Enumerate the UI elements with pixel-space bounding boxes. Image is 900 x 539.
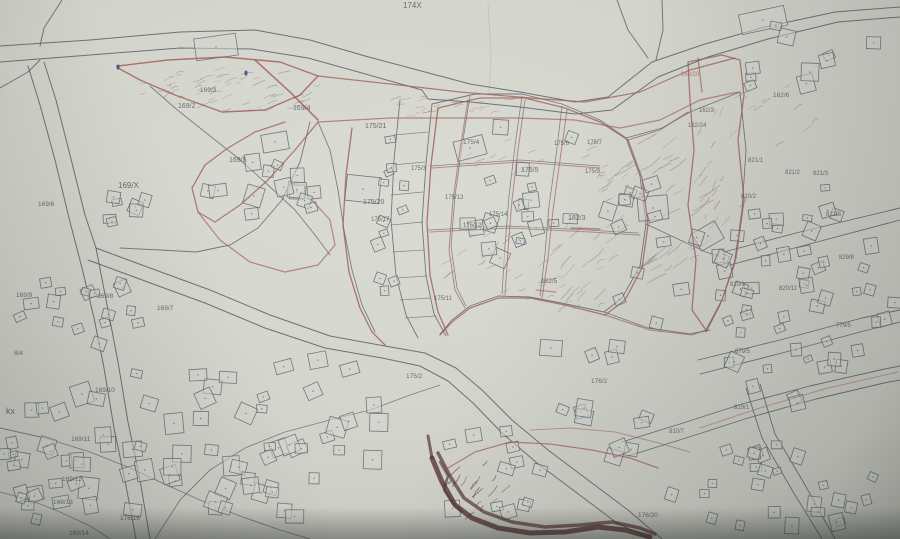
hatch-scribble bbox=[267, 85, 277, 88]
boundary-line bbox=[628, 380, 900, 456]
hatch-scribble bbox=[476, 159, 484, 162]
parcel-label: 175/13 bbox=[445, 195, 464, 201]
hatch-scribble bbox=[177, 74, 181, 75]
hatch-scribble bbox=[595, 289, 606, 300]
hatch-scribble bbox=[722, 218, 726, 226]
hatch-scribble bbox=[594, 233, 601, 240]
hatch-scribble bbox=[804, 125, 812, 131]
boundary-line bbox=[617, 0, 648, 58]
building-footprint bbox=[585, 347, 600, 363]
building-footprint bbox=[751, 478, 764, 491]
red-annotation-line bbox=[449, 100, 468, 308]
hatch-scribble bbox=[720, 177, 723, 181]
building-footprint bbox=[13, 311, 27, 323]
parcel-label: 174X bbox=[403, 1, 422, 10]
hatch-scribble bbox=[663, 137, 676, 149]
building-footprint bbox=[40, 277, 52, 288]
parcel-label: 810/7 bbox=[669, 429, 685, 435]
hatch-scribble bbox=[582, 260, 591, 267]
building-footprint bbox=[385, 135, 396, 143]
blue-pen-mark bbox=[244, 70, 247, 75]
building-footprint bbox=[50, 402, 70, 421]
hatch-scribble bbox=[473, 488, 479, 498]
hatch-scribble bbox=[455, 104, 463, 106]
hatch-scribble bbox=[240, 76, 246, 79]
parcel-label: 169/2 bbox=[178, 103, 196, 110]
building-footprint bbox=[522, 211, 534, 221]
building-footprint bbox=[106, 217, 117, 228]
red-annotation-line bbox=[571, 228, 600, 229]
boundary-line bbox=[622, 366, 900, 442]
building-footprint bbox=[189, 369, 207, 381]
hatch-scribble bbox=[714, 201, 720, 209]
hatch-scribble bbox=[561, 256, 571, 268]
boundary-line bbox=[488, 4, 491, 95]
red-annotation-line bbox=[605, 140, 648, 315]
hatch-scribble bbox=[597, 259, 604, 263]
building-footprint bbox=[790, 343, 801, 356]
building-footprint bbox=[208, 183, 227, 197]
hatch-scribble bbox=[609, 255, 619, 261]
building-footprint bbox=[866, 37, 880, 49]
building-footprint bbox=[649, 316, 663, 330]
building-footprint bbox=[500, 426, 513, 437]
building-footprint bbox=[872, 317, 881, 328]
parcel-label: kx bbox=[6, 406, 16, 416]
building-footprint bbox=[193, 411, 208, 425]
building-footprint bbox=[399, 181, 409, 191]
building-footprint bbox=[634, 416, 650, 429]
building-footprint bbox=[757, 464, 773, 479]
hatch-scribble bbox=[457, 250, 466, 256]
parcel-label: 821/3 bbox=[813, 171, 829, 177]
hatch-scribble bbox=[176, 71, 184, 73]
hatch-scribble bbox=[225, 78, 236, 83]
hatch-scribble bbox=[587, 147, 597, 151]
hatch-scribble bbox=[419, 98, 427, 101]
hatch-scribble bbox=[726, 216, 730, 221]
building-footprint bbox=[763, 364, 772, 373]
building-footprint bbox=[516, 237, 525, 244]
parcel-label: 175/11 bbox=[434, 296, 453, 302]
parcel-label: 169/7 bbox=[157, 305, 174, 312]
building-footprint bbox=[770, 21, 782, 30]
hatch-scribble bbox=[776, 142, 784, 146]
building-footprint bbox=[274, 177, 294, 197]
parcel-label: 175/4 bbox=[463, 139, 480, 146]
parcel-label: 162/6 bbox=[773, 92, 790, 99]
cadastral-map: 174X169/2169/3169/4169/X169/5169/6169/81… bbox=[0, 0, 900, 539]
hatch-scribble bbox=[227, 83, 232, 85]
building-footprint bbox=[821, 336, 833, 348]
parcel-label: 829/8 bbox=[839, 255, 855, 261]
building-footprint bbox=[797, 245, 812, 257]
parcel-label: 162/3 bbox=[699, 108, 715, 114]
building-footprint bbox=[36, 402, 49, 414]
building-footprint bbox=[656, 236, 671, 247]
hatch-scribble bbox=[674, 188, 684, 195]
hatch-scribble bbox=[502, 486, 510, 493]
building-footprint bbox=[722, 315, 733, 326]
hatch-scribble bbox=[484, 233, 490, 237]
hatch-scribble bbox=[567, 301, 572, 303]
boundary-line bbox=[656, 0, 663, 60]
hatch-scribble bbox=[519, 289, 524, 291]
parcel-label: 8/4 bbox=[14, 350, 23, 357]
building-footprint bbox=[556, 403, 570, 416]
hatch-scribble bbox=[198, 80, 205, 83]
building-footprint bbox=[852, 287, 861, 296]
building-footprint bbox=[735, 520, 745, 531]
hatch-scribble bbox=[665, 265, 672, 271]
building-footprint bbox=[244, 153, 261, 171]
boundary-line bbox=[432, 94, 626, 138]
boundary-line bbox=[96, 248, 662, 539]
parcel-label: 175/20 bbox=[363, 199, 385, 206]
hatch-scribble bbox=[597, 266, 603, 270]
hatch-scribble bbox=[473, 106, 483, 109]
building-footprint bbox=[256, 404, 267, 413]
parcel-label: 175/12 bbox=[463, 223, 482, 229]
boundary-line bbox=[391, 222, 423, 225]
building-footprint bbox=[380, 286, 389, 296]
building-footprint bbox=[861, 494, 872, 506]
map-photo: 174X169/2169/3169/4169/X169/5169/6169/81… bbox=[0, 0, 900, 539]
parcel-label: 160/20 bbox=[681, 72, 700, 78]
building-footprint bbox=[575, 398, 593, 418]
building-footprint bbox=[55, 287, 66, 296]
building-footprint bbox=[295, 444, 308, 454]
parcel-label: 169/3 bbox=[200, 87, 217, 94]
hatch-scribble bbox=[638, 134, 657, 144]
building-footprint bbox=[49, 478, 63, 488]
hatch-scribble bbox=[208, 100, 216, 102]
parcel-label: 819/1 bbox=[734, 405, 750, 411]
boundary-line bbox=[405, 316, 436, 318]
hatch-scribble bbox=[490, 111, 499, 114]
boundary-line bbox=[40, 0, 62, 46]
building-footprint bbox=[802, 221, 821, 241]
building-footprint bbox=[748, 209, 761, 219]
parcel-label: 169/4 bbox=[293, 105, 311, 112]
building-footprint bbox=[642, 176, 661, 193]
parcel-label: 176/16 bbox=[120, 515, 140, 522]
building-footprint bbox=[761, 255, 770, 266]
building-footprint bbox=[234, 402, 257, 425]
hatch-scribble bbox=[476, 501, 481, 505]
hatch-scribble bbox=[561, 286, 572, 299]
building-footprint bbox=[379, 229, 389, 238]
boundary-line bbox=[396, 276, 427, 278]
parcel-label: 175/3 bbox=[411, 166, 427, 172]
building-footprint bbox=[82, 496, 98, 514]
building-footprint bbox=[664, 487, 679, 503]
building-footprint bbox=[549, 219, 559, 226]
building-footprint bbox=[303, 382, 323, 401]
parcel-label: 175/14 bbox=[489, 212, 508, 218]
hatch-scribble bbox=[598, 303, 604, 307]
building-footprint bbox=[803, 355, 813, 363]
parcel-label: 679/5 bbox=[735, 349, 751, 355]
hatch-scribble bbox=[528, 150, 536, 153]
building-footprint bbox=[274, 358, 294, 374]
hatch-scribble bbox=[278, 71, 290, 74]
building-footprint bbox=[264, 442, 276, 450]
boundary-line bbox=[393, 250, 424, 252]
building-footprint bbox=[831, 493, 846, 509]
hatch-scribble bbox=[500, 156, 507, 160]
hatch-scribble bbox=[490, 154, 496, 158]
building-footprint bbox=[785, 517, 800, 534]
parcel-label: 169/13 bbox=[53, 499, 73, 506]
building-footprint bbox=[532, 463, 548, 477]
building-footprint bbox=[130, 369, 142, 379]
hatch-scribble bbox=[623, 173, 628, 177]
hatch-scribble bbox=[560, 284, 566, 287]
building-footprint bbox=[522, 192, 540, 209]
building-footprint bbox=[6, 436, 19, 450]
hatch-scribble bbox=[433, 104, 440, 106]
heavy-red-stroke bbox=[438, 453, 655, 534]
hatch-scribble bbox=[169, 76, 174, 77]
building-footprint bbox=[363, 450, 382, 469]
building-footprint bbox=[370, 237, 385, 253]
building-footprint bbox=[730, 230, 744, 242]
hatch-scribble bbox=[712, 142, 716, 148]
building-footprint bbox=[790, 448, 806, 465]
hatch-scribble bbox=[421, 96, 427, 97]
parcel-label: 169/9 bbox=[16, 292, 33, 299]
hatch-scribble bbox=[699, 185, 719, 198]
parcel-label: 821/2 bbox=[785, 170, 801, 176]
building-footprint bbox=[598, 201, 617, 221]
building-footprint bbox=[309, 473, 319, 484]
hatch-scribble bbox=[303, 92, 312, 97]
hatch-scribble bbox=[651, 265, 662, 271]
building-footprint bbox=[261, 131, 290, 153]
hatch-scribble bbox=[243, 102, 249, 104]
hatch-scribble bbox=[551, 243, 564, 255]
hatch-scribble bbox=[172, 89, 178, 92]
red-annotation-line bbox=[628, 112, 688, 140]
parcel-label: 182/5 bbox=[541, 278, 558, 285]
boundary-line bbox=[540, 106, 562, 296]
building-footprint bbox=[265, 487, 278, 498]
building-footprint bbox=[73, 457, 91, 472]
building-footprint bbox=[219, 371, 237, 383]
hatch-scribble bbox=[479, 260, 485, 264]
building-footprint bbox=[746, 378, 761, 394]
hatch-scribble bbox=[670, 159, 686, 171]
hatch-scribble bbox=[785, 85, 788, 87]
parcel-label: 820/11 bbox=[779, 286, 798, 292]
hatch-scribble bbox=[209, 98, 214, 100]
hatch-scribble bbox=[761, 99, 765, 101]
hatch-scribble bbox=[670, 157, 679, 161]
building-footprint bbox=[539, 339, 562, 356]
hatch-scribble bbox=[607, 198, 613, 200]
hatch-scribble bbox=[666, 185, 674, 192]
building-footprint bbox=[443, 439, 457, 450]
blue-pen-mark bbox=[116, 64, 119, 69]
hatch-scribble bbox=[557, 276, 562, 277]
parcel-label: 169/14 bbox=[69, 530, 89, 537]
parcel-label: 820/2 bbox=[741, 194, 757, 200]
parcel-label: 169/12 bbox=[62, 476, 82, 483]
building-footprint bbox=[673, 282, 690, 296]
building-footprint bbox=[290, 168, 304, 183]
hatch-scribble bbox=[694, 175, 702, 183]
hatch-scribble bbox=[140, 92, 145, 94]
hatch-scribble bbox=[548, 295, 553, 297]
building-footprint bbox=[619, 194, 631, 205]
hatch-scribble bbox=[507, 270, 511, 273]
building-footprint bbox=[754, 236, 768, 251]
building-footprint bbox=[778, 310, 790, 323]
hatch-scribble bbox=[215, 68, 225, 71]
building-footprint bbox=[844, 501, 857, 514]
hatch-scribble bbox=[223, 108, 230, 110]
hatch-scribble bbox=[169, 83, 176, 86]
hatch-scribble bbox=[714, 109, 716, 114]
building-footprint bbox=[140, 395, 159, 412]
building-footprint bbox=[733, 456, 744, 466]
hatch-scribble bbox=[416, 112, 420, 113]
building-footprint bbox=[126, 306, 135, 316]
hatch-scribble bbox=[690, 204, 705, 217]
hatch-scribble bbox=[705, 197, 709, 203]
parcel-label: 820/1 bbox=[730, 282, 746, 288]
parcel-label: 175/6 bbox=[554, 141, 570, 147]
hatch-scribble bbox=[253, 80, 265, 85]
parcel-label: 176/20 bbox=[638, 512, 658, 519]
building-footprint bbox=[286, 510, 304, 523]
building-footprint bbox=[887, 297, 900, 308]
building-footprint bbox=[194, 33, 239, 61]
building-footprint bbox=[811, 507, 825, 516]
hatch-scribble bbox=[763, 98, 771, 103]
heavy-red-stroke bbox=[428, 436, 432, 458]
parcel-label: 169/X bbox=[118, 181, 140, 190]
hatch-scribble bbox=[720, 106, 724, 116]
hatch-scribble bbox=[164, 79, 168, 81]
building-footprint bbox=[492, 119, 508, 135]
hatch-scribble bbox=[700, 167, 706, 176]
hatch-scribble bbox=[268, 101, 277, 104]
building-footprint bbox=[31, 513, 42, 525]
building-footprint bbox=[257, 391, 270, 403]
building-footprint bbox=[706, 512, 718, 525]
boundary-line bbox=[318, 122, 375, 332]
hatch-scribble bbox=[730, 133, 732, 138]
parcel-label: 162/24 bbox=[688, 123, 707, 129]
parcel-label: 169/11 bbox=[71, 436, 91, 443]
hatch-scribble bbox=[602, 182, 610, 189]
hatch-scribble bbox=[504, 140, 511, 142]
hatch-scribble bbox=[591, 249, 603, 261]
building-footprint bbox=[386, 163, 396, 172]
parcel-label: 176/2 bbox=[591, 378, 608, 385]
hatch-scribble bbox=[812, 118, 818, 123]
building-footprint bbox=[863, 237, 879, 254]
building-footprint bbox=[762, 218, 772, 228]
red-annotation-line bbox=[536, 290, 556, 292]
hatch-scribble bbox=[237, 82, 242, 84]
building-footprint bbox=[818, 256, 830, 268]
building-footprint bbox=[801, 63, 819, 81]
building-footprint bbox=[708, 479, 717, 487]
building-footprint bbox=[370, 413, 389, 431]
hatch-scribble bbox=[583, 154, 590, 158]
hatch-scribble bbox=[461, 477, 466, 486]
building-footprint bbox=[366, 397, 382, 413]
building-footprint bbox=[828, 512, 845, 531]
building-footprint bbox=[720, 444, 733, 456]
hatch-scribble bbox=[505, 99, 515, 100]
hatch-scribble bbox=[502, 236, 510, 243]
parcel-label: 169/6 bbox=[38, 201, 55, 208]
hatch-scribble bbox=[608, 174, 616, 180]
building-footprint bbox=[242, 477, 260, 495]
red-annotation-line bbox=[343, 128, 385, 345]
hatch-scribble bbox=[581, 282, 591, 290]
hatch-scribble bbox=[602, 175, 605, 178]
building-footprint bbox=[484, 175, 496, 186]
building-footprint bbox=[608, 339, 625, 353]
building-footprint bbox=[374, 272, 387, 285]
hatch-scribble bbox=[400, 98, 410, 99]
parcel-label: 779/5 bbox=[836, 323, 852, 329]
hatch-scribble bbox=[254, 78, 260, 80]
boundary-line bbox=[392, 162, 425, 165]
hatch-scribble bbox=[492, 476, 496, 481]
hatch-scribble bbox=[478, 101, 483, 102]
hatch-scribble bbox=[705, 215, 707, 219]
building-footprint bbox=[205, 444, 219, 455]
hatch-scribble bbox=[664, 155, 673, 160]
building-footprint bbox=[46, 294, 60, 309]
hatch-scribble bbox=[223, 94, 233, 99]
building-footprint bbox=[23, 297, 39, 310]
building-footprint bbox=[81, 287, 91, 296]
parcel-label: 175/5 bbox=[521, 167, 539, 174]
boundary-line bbox=[394, 132, 428, 135]
hatch-scribble bbox=[690, 255, 698, 259]
hatch-scribble bbox=[469, 110, 473, 111]
hatch-scribble bbox=[407, 116, 415, 117]
building-footprint bbox=[339, 361, 359, 378]
hatch-scribble bbox=[734, 130, 739, 133]
hatch-scribble bbox=[795, 104, 802, 110]
building-footprint bbox=[527, 183, 536, 192]
hatch-scribble bbox=[562, 264, 574, 278]
building-footprint bbox=[858, 262, 870, 273]
building-footprint bbox=[821, 184, 830, 191]
hatch-scribble bbox=[606, 234, 618, 243]
parcel-label: 169/10 bbox=[95, 387, 115, 394]
building-footprint bbox=[71, 323, 84, 335]
building-footprint bbox=[867, 472, 878, 483]
building-footprint bbox=[91, 336, 108, 352]
parcel-label: 175/7 bbox=[587, 140, 603, 146]
parcel-label: 175/17 bbox=[371, 217, 390, 223]
hatch-scribble bbox=[451, 467, 460, 476]
hatch-scribble bbox=[515, 274, 522, 278]
building-footprint bbox=[106, 190, 121, 203]
boundary-line bbox=[400, 298, 430, 300]
hatch-scribble bbox=[577, 292, 585, 302]
hatch-scribble bbox=[603, 165, 608, 167]
